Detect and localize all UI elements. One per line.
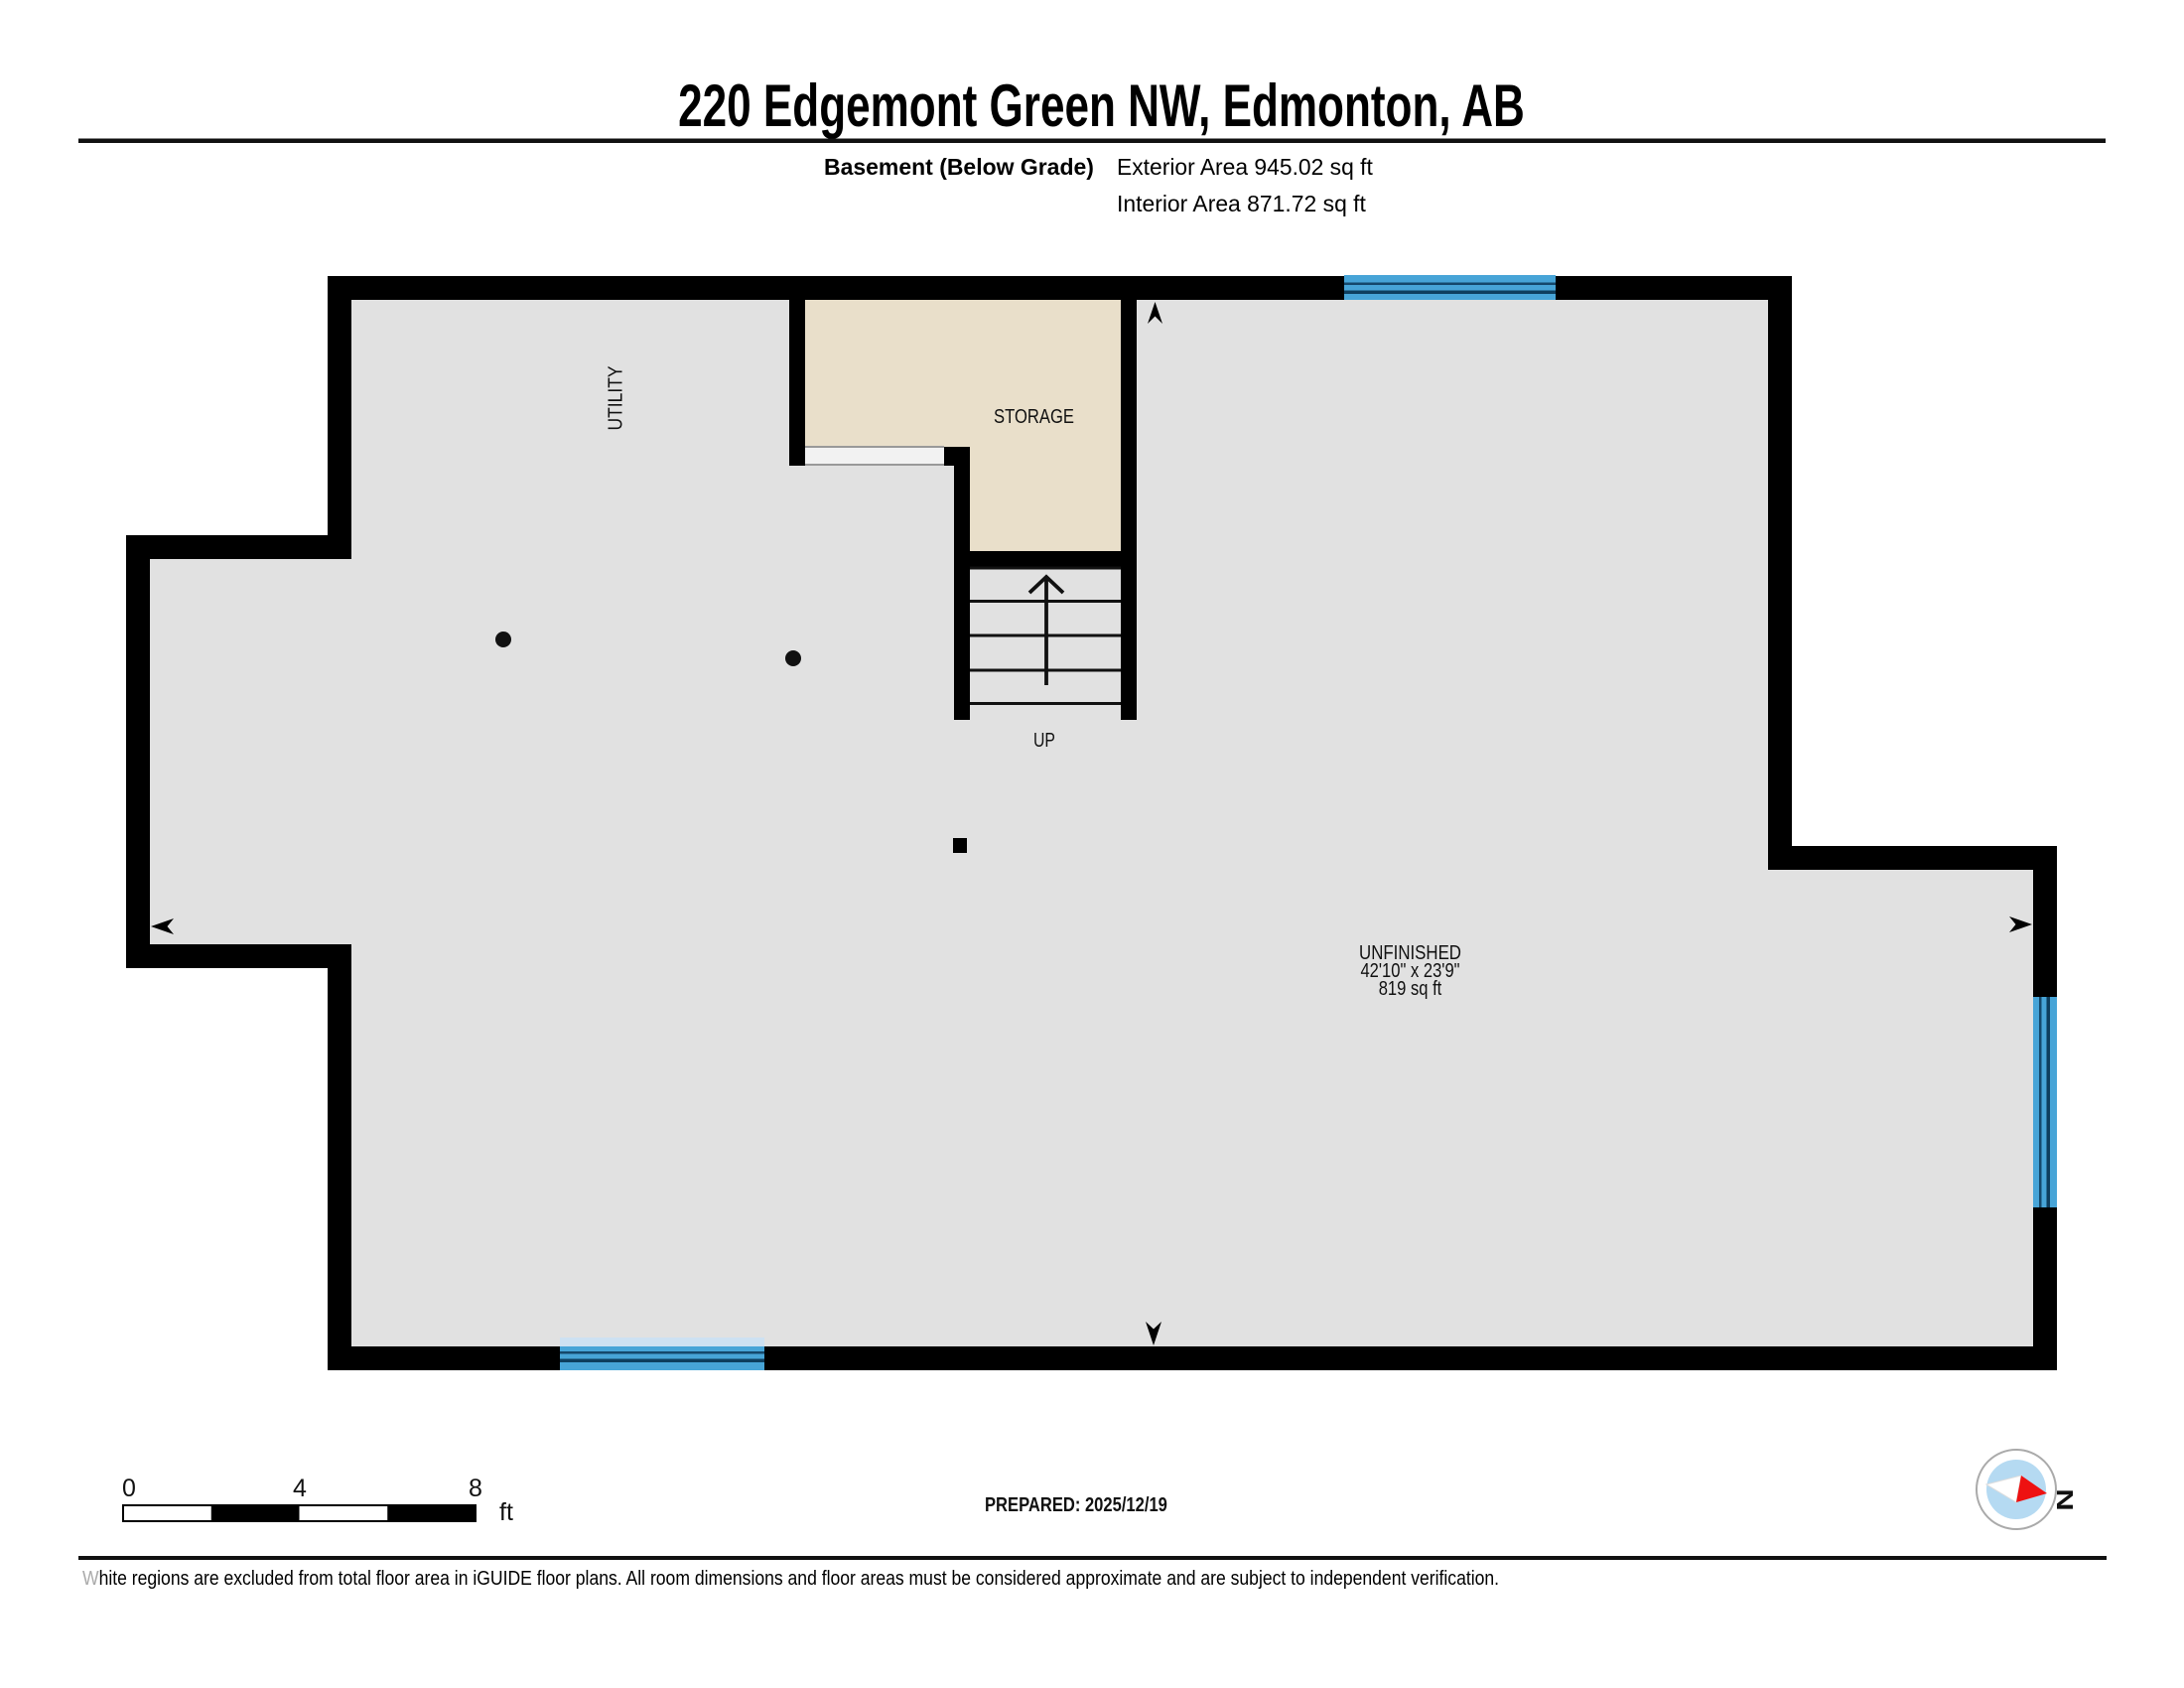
svg-text:Exterior Area 945.02 sq ft: Exterior Area 945.02 sq ft [1117, 154, 1373, 180]
svg-text:8: 8 [469, 1475, 482, 1502]
svg-text:White regions are excluded fro: White regions are excluded from total fl… [82, 1567, 1499, 1589]
svg-text:220 Edgemont Green NW, Edmonto: 220 Edgemont Green NW, Edmonton, AB [678, 72, 1525, 139]
svg-text:4: 4 [293, 1475, 307, 1502]
svg-text:819 sq ft: 819 sq ft [1379, 976, 1442, 999]
svg-text:UTILITY: UTILITY [604, 365, 625, 430]
svg-text:Interior Area 871.72 sq ft: Interior Area 871.72 sq ft [1117, 191, 1366, 216]
svg-text:ft: ft [499, 1498, 513, 1526]
svg-text:UP: UP [1033, 729, 1055, 751]
svg-text:Basement (Below Grade): Basement (Below Grade) [824, 154, 1094, 180]
svg-text:PREPARED: 2025/12/19: PREPARED: 2025/12/19 [985, 1492, 1167, 1515]
svg-text:STORAGE: STORAGE [994, 405, 1074, 428]
svg-text:0: 0 [122, 1475, 136, 1502]
svg-text:N: N [2052, 1488, 2078, 1510]
